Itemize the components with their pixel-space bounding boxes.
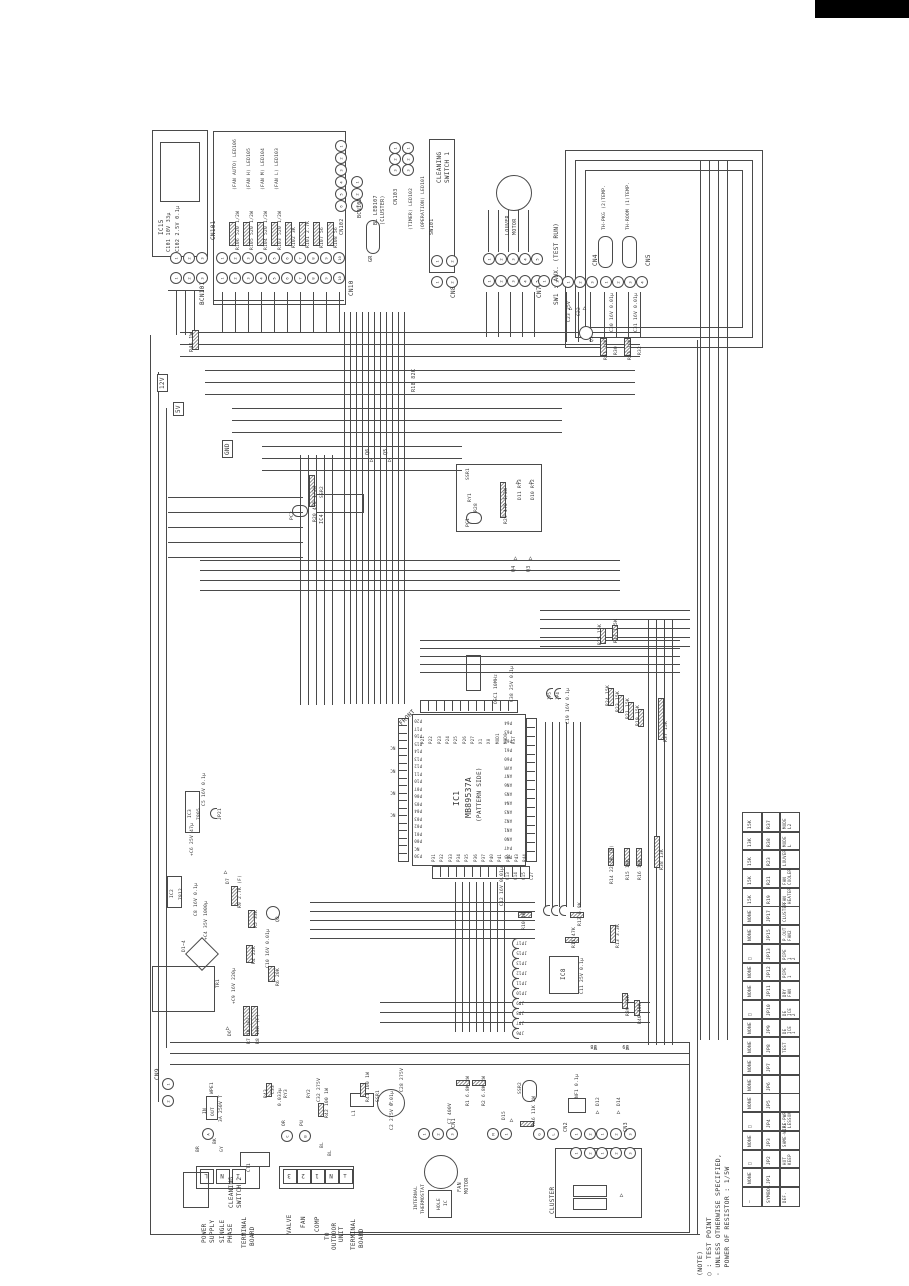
table-cell-text: DRY FAN bbox=[783, 989, 792, 997]
connector-pin: 3 bbox=[242, 272, 254, 284]
pin-label: JP13 bbox=[516, 960, 527, 965]
pin-number: C bbox=[284, 1135, 289, 1137]
diode-icon: ▷ bbox=[618, 1193, 625, 1197]
part-label: R42 100 1W bbox=[325, 1088, 330, 1118]
bus-wire bbox=[497, 882, 498, 1032]
bus-wire bbox=[476, 882, 477, 1032]
table-cell-text: NONE bbox=[748, 929, 753, 941]
pin-number: 1 bbox=[421, 1133, 426, 1135]
bus-wire bbox=[180, 356, 640, 357]
component-box bbox=[152, 966, 215, 1012]
connector-pin: 2 bbox=[612, 276, 624, 288]
part-label: R41 100 1W bbox=[366, 1072, 371, 1102]
part-label: TH-PKG (2)TEMP. bbox=[602, 185, 607, 230]
table-cell bbox=[742, 1149, 763, 1170]
connector-pin: 1 bbox=[600, 276, 612, 288]
resistor bbox=[268, 966, 275, 982]
pin-label: AN4 bbox=[504, 800, 512, 805]
table-cell-text: MODE L bbox=[783, 837, 792, 848]
pin-label: P21 bbox=[421, 736, 426, 744]
part-label: JP5 bbox=[548, 692, 553, 700]
part-label: R21 15K bbox=[626, 698, 631, 719]
bus-wire bbox=[573, 722, 574, 907]
connector-pin: 7 bbox=[294, 252, 306, 264]
pin-label: P32 bbox=[440, 854, 445, 862]
ic-strip-divider bbox=[448, 866, 449, 877]
pin-label: P44 bbox=[523, 854, 528, 862]
part-label: R24 15K bbox=[606, 685, 611, 706]
connector-pin: M bbox=[487, 1128, 499, 1140]
pin-label: P05 bbox=[414, 801, 422, 806]
connector-pin: 2 bbox=[574, 276, 586, 288]
part-label: IC8 bbox=[560, 968, 567, 980]
bus-wire bbox=[672, 620, 673, 1045]
table-cell bbox=[742, 999, 763, 1020]
component-box bbox=[240, 1152, 270, 1167]
pin-number: 1 bbox=[599, 1133, 604, 1135]
pin-number: M bbox=[490, 1133, 495, 1135]
connector-pin: 2 bbox=[610, 1128, 622, 1140]
pin-number: 3 bbox=[245, 277, 250, 279]
bus-wire bbox=[200, 580, 620, 581]
bus-wire bbox=[552, 722, 553, 907]
pin-label: P60 bbox=[504, 756, 512, 761]
pin-number: 2 bbox=[405, 158, 410, 160]
pin-label: AN1 bbox=[504, 827, 512, 832]
part-label: HOLE bbox=[437, 1198, 442, 1210]
ic-strip-divider bbox=[398, 845, 407, 846]
note-line: POWER OF RESISTOR : 1/5W bbox=[724, 1166, 732, 1276]
connector-pin: C bbox=[281, 1130, 293, 1142]
pin-number: 3 bbox=[510, 258, 515, 260]
pin-number: 3 bbox=[589, 281, 594, 283]
part-label: R29 470 1/2W bbox=[504, 488, 509, 524]
table-cell-text: SAME-WIRE bbox=[783, 1122, 788, 1146]
part-label: VALVE bbox=[286, 1214, 293, 1234]
ic-strip-divider bbox=[526, 833, 535, 834]
part-label: BK bbox=[213, 1138, 218, 1144]
part-label: CN10 bbox=[348, 280, 355, 296]
part-label: R1 6.8K 2W bbox=[466, 1076, 471, 1106]
connector-pin: 1 bbox=[418, 1128, 430, 1140]
part-label: C13 bbox=[506, 872, 511, 880]
part-label: R106 520 1/2W bbox=[236, 211, 241, 250]
part-label: ⊥ bbox=[236, 1172, 240, 1179]
pin-label: P26 bbox=[463, 736, 468, 744]
connector-pin: 3 bbox=[624, 276, 636, 288]
part-label: OUT bbox=[211, 1107, 216, 1116]
ic-strip-divider bbox=[480, 866, 481, 877]
part-label: 3A 250V T bbox=[219, 1095, 224, 1122]
part-label: C8 16V 0.1μ bbox=[194, 883, 199, 916]
ic-strip bbox=[526, 718, 537, 862]
pin-number: 7 bbox=[297, 257, 302, 259]
wire bbox=[689, 1043, 690, 1233]
ic-strip bbox=[420, 700, 518, 713]
bus-wire bbox=[483, 882, 484, 1032]
pin-label: JP11 bbox=[516, 980, 527, 985]
pin-number: 2 bbox=[449, 260, 454, 262]
pin-number: 6 bbox=[284, 277, 289, 279]
part-label: PHASE bbox=[227, 1223, 234, 1243]
connector-pin: 2 bbox=[229, 252, 241, 264]
connector-pin: 1 bbox=[216, 272, 228, 284]
pin-number: 3 bbox=[199, 257, 204, 259]
pin-number: G bbox=[536, 1133, 541, 1135]
pin-number: 2 bbox=[232, 257, 237, 259]
part-label: C15 bbox=[522, 872, 527, 880]
part-label: RY1 bbox=[468, 493, 473, 502]
pin-label: AVR bbox=[504, 765, 512, 770]
pin-label: P41 bbox=[498, 854, 503, 862]
connector-pin: 1 bbox=[596, 1147, 608, 1159]
connector-pin: 2 bbox=[162, 1095, 174, 1107]
connector-pin: 4 bbox=[519, 275, 531, 287]
bus-wire bbox=[168, 542, 303, 543]
redaction-box bbox=[815, 0, 909, 18]
part-label: L1 bbox=[352, 1110, 357, 1116]
component-box bbox=[622, 236, 637, 268]
part-label: R102 3K bbox=[292, 227, 297, 248]
part-label: C19 16V 0.1μ bbox=[566, 688, 571, 724]
note-line: · UNLESS OTHERWISE SPECIFIED, bbox=[715, 1154, 723, 1276]
bus-wire bbox=[420, 672, 680, 673]
pin-label: JP17 bbox=[516, 940, 527, 945]
table-cell-text: JP13 bbox=[767, 948, 772, 960]
table-cell-text: JP7 bbox=[767, 1063, 772, 1072]
table-cell-text: R21 bbox=[767, 876, 772, 885]
part-label: C102 2.5V 0.1μ bbox=[176, 206, 182, 252]
part-label: R25 15K bbox=[598, 624, 603, 645]
table-cell-text: DE ICE 2 bbox=[783, 1008, 797, 1016]
pin-number: 2 bbox=[165, 1100, 170, 1102]
pin-label: MOD0 bbox=[504, 733, 509, 744]
ic-strip-divider bbox=[398, 838, 407, 839]
connector-pin: 2 bbox=[446, 255, 458, 267]
pin-label: JP15 bbox=[516, 950, 527, 955]
bus-wire bbox=[232, 432, 562, 433]
part-label: R17 1.5K bbox=[614, 619, 619, 643]
part-label: SSR1 bbox=[466, 468, 471, 480]
connector-pin: 2 bbox=[183, 252, 195, 264]
connector-pin: 4 bbox=[335, 176, 347, 188]
bus-wire bbox=[392, 312, 393, 704]
table-cell-text: PIPE 1 2 bbox=[783, 949, 797, 960]
part-label: D1~4 bbox=[182, 940, 187, 952]
ic-strip-divider bbox=[468, 700, 469, 711]
part-label: (FAN AUTO) LED106 bbox=[233, 139, 238, 190]
table-cell-text: — bbox=[748, 1200, 753, 1203]
pin-label: AN6 bbox=[504, 782, 512, 787]
table-cell-text: R19 bbox=[767, 894, 772, 903]
pin-number: 2 bbox=[186, 257, 191, 259]
pin-number: 3 bbox=[627, 1133, 632, 1135]
part-label: C31 16V 0.01μ bbox=[634, 293, 639, 332]
part-label: R19 15K bbox=[636, 705, 641, 726]
bus-wire bbox=[168, 557, 303, 558]
part-label: R46 11K 2W bbox=[532, 1096, 537, 1126]
connector-pin: 7 bbox=[294, 272, 306, 284]
part-label: Q5 bbox=[384, 448, 390, 455]
table-cell-text: NONE bbox=[748, 1097, 753, 1109]
pin-label: P04 bbox=[414, 808, 422, 813]
pin-number: 3 bbox=[627, 1152, 632, 1154]
connector-pin: 1 bbox=[483, 275, 495, 287]
component-box bbox=[568, 1098, 586, 1113]
bus-wire bbox=[232, 408, 562, 409]
bus-wire bbox=[185, 290, 186, 335]
jumper-arc bbox=[210, 808, 217, 819]
table-cell bbox=[742, 943, 763, 964]
table-cell-text: 15K bbox=[748, 876, 753, 885]
ic-strip-divider bbox=[508, 700, 509, 711]
connector-pin: 5 bbox=[335, 188, 347, 200]
part-label: C5 16V 0.1μ bbox=[202, 773, 207, 806]
pin-label: P24 bbox=[446, 736, 451, 744]
table-cell-text: NONE bbox=[748, 1172, 753, 1184]
part-label: FAN bbox=[458, 1182, 464, 1192]
part-label: N bbox=[329, 1172, 333, 1179]
part-label: IC4 bbox=[320, 514, 326, 524]
part-label: Q1 bbox=[590, 336, 595, 342]
ic-strip-divider bbox=[526, 816, 535, 817]
diode-icon: ▷ bbox=[594, 1110, 601, 1114]
part-label: SW101 bbox=[430, 218, 436, 235]
connector-pin: 1 bbox=[170, 272, 182, 284]
bus-wire bbox=[420, 664, 680, 665]
connector-pin: 3 bbox=[446, 1128, 458, 1140]
pin-number: 5 bbox=[271, 277, 276, 279]
bus-wire bbox=[310, 920, 535, 921]
part-label: CN102 bbox=[340, 218, 346, 235]
bus-wire bbox=[469, 882, 470, 1032]
pin-number: 2 bbox=[587, 1133, 592, 1135]
part-label: C11 25V 0.1μ bbox=[580, 958, 585, 994]
ic-strip-divider bbox=[398, 763, 407, 764]
connector-pin: 3 bbox=[242, 252, 254, 264]
connector-pin: 1 bbox=[335, 140, 347, 152]
diode-icon: ▷ bbox=[224, 1026, 231, 1030]
pin-label: P30 bbox=[414, 853, 422, 858]
connector-pin: 1 bbox=[562, 276, 574, 288]
part-label: R105 520 1/2W bbox=[250, 211, 255, 250]
connector-pin: 9 bbox=[320, 252, 332, 264]
part-label: R12 6.8K bbox=[578, 902, 583, 926]
part-label: BCN101 bbox=[199, 282, 206, 305]
part-label: IC3 bbox=[188, 809, 193, 818]
bus-wire bbox=[310, 911, 535, 912]
part-label: IC2 bbox=[170, 889, 175, 898]
table-cell-text: JP4 bbox=[767, 1119, 772, 1128]
part-label: R31 10K bbox=[604, 339, 609, 360]
table-cell-text: JP5 bbox=[767, 1100, 772, 1109]
part-label: TERMINAL bbox=[350, 1219, 357, 1250]
pin-number: 1 bbox=[165, 1083, 170, 1085]
connector-pin: 4 bbox=[255, 272, 267, 284]
pin-label: P01 bbox=[414, 831, 422, 836]
ic-strip-divider bbox=[526, 798, 535, 799]
circle-part bbox=[424, 1155, 458, 1189]
resistor bbox=[313, 222, 320, 246]
table-cell-text: □ bbox=[748, 957, 753, 960]
resistor bbox=[327, 222, 334, 246]
part-label: INTERNAL bbox=[414, 1186, 419, 1210]
part-label: +C9 16V 220μ bbox=[232, 968, 237, 1004]
connector-pin: 3 bbox=[624, 1147, 636, 1159]
part-label: POWER bbox=[201, 1223, 208, 1243]
diode-icon: ▷ bbox=[592, 1046, 599, 1050]
table-cell-text: NONE bbox=[748, 966, 753, 978]
connector-pin: L bbox=[547, 1128, 559, 1140]
pin-number: 6 bbox=[284, 257, 289, 259]
ic-strip-divider bbox=[398, 793, 407, 794]
pin-label: P10 bbox=[414, 778, 422, 783]
part-label: (PATTERN SIDE) bbox=[476, 767, 483, 822]
table-cell bbox=[742, 1111, 763, 1132]
part-label: SSR1 bbox=[376, 1090, 381, 1102]
part-label: IC15 bbox=[158, 219, 165, 235]
part-label: GR bbox=[369, 255, 375, 262]
ic-strip-divider bbox=[526, 762, 535, 763]
bus-wire bbox=[462, 882, 463, 1032]
diode-icon: ▷ bbox=[512, 556, 519, 560]
pin-label: P40 bbox=[490, 854, 495, 862]
part-label: R39 10K bbox=[626, 995, 631, 1016]
part-label: R38 13K bbox=[660, 849, 665, 870]
jumper-arc bbox=[559, 905, 566, 916]
table-cell-text: □ bbox=[748, 1013, 753, 1016]
part-label: R9 2.7K (F) bbox=[238, 875, 243, 908]
bus-wire bbox=[540, 610, 690, 611]
bus-wire bbox=[168, 497, 303, 498]
pin-number: 1 bbox=[173, 277, 178, 279]
ic-strip-divider bbox=[526, 771, 535, 772]
part-label: SSR2 bbox=[518, 1082, 523, 1094]
table-cell-text: FAN COOLER bbox=[783, 869, 792, 885]
part-label: NC bbox=[390, 745, 395, 750]
connector-pin: 5 bbox=[531, 253, 543, 265]
part-label: BL bbox=[328, 1150, 333, 1156]
part-label: D12 bbox=[596, 1097, 601, 1106]
part-label: RY2 bbox=[307, 1089, 312, 1098]
table-cell-text: □ bbox=[748, 1125, 753, 1128]
pin-number: 2 bbox=[587, 1152, 592, 1154]
part-label: R107 56 bbox=[320, 227, 325, 248]
connector-pin: 2 bbox=[610, 1147, 622, 1159]
resistor bbox=[271, 222, 278, 246]
table-cell bbox=[779, 1167, 800, 1188]
connector-pin: 6 bbox=[335, 200, 347, 212]
component-box bbox=[573, 1185, 607, 1197]
part-label: R20 470 1/2W bbox=[313, 486, 318, 522]
pin-label: P34 bbox=[457, 854, 462, 862]
bus-wire bbox=[490, 882, 491, 1032]
connector-pin: 1 bbox=[170, 252, 182, 264]
connector-pin: 2 bbox=[432, 1128, 444, 1140]
table-cell-text: SYMBOL bbox=[767, 1185, 772, 1203]
table-cell-text: □ bbox=[748, 1162, 753, 1165]
bus-wire bbox=[488, 210, 489, 252]
pin-label: X1 bbox=[479, 739, 484, 744]
part-label: L bbox=[204, 1172, 208, 1179]
pin-number: 2 bbox=[435, 1133, 440, 1135]
part-label: ⊥ bbox=[343, 1172, 347, 1179]
connector-pin: 4 bbox=[519, 253, 531, 265]
bus-wire bbox=[200, 590, 620, 591]
bus-wire bbox=[170, 1064, 690, 1065]
ic-strip-divider bbox=[526, 825, 535, 826]
pin-number: 10 bbox=[336, 256, 341, 261]
connector-pin: 8 bbox=[307, 272, 319, 284]
part-label: D7 bbox=[226, 878, 231, 884]
part-label: BOARD bbox=[358, 1228, 365, 1248]
connector-pin: 1 bbox=[162, 1078, 174, 1090]
ic-strip-divider bbox=[526, 780, 535, 781]
pin-label: P31 bbox=[432, 854, 437, 862]
ic-strip-divider bbox=[460, 700, 461, 711]
pin-number: 2 bbox=[449, 281, 454, 283]
part-label: R43 bbox=[264, 1089, 269, 1098]
pin-number: 9 bbox=[323, 277, 328, 279]
part-label: CLEANING bbox=[228, 1177, 235, 1208]
pin-number: 4 bbox=[258, 257, 263, 259]
part-label: JP21 bbox=[218, 808, 223, 820]
part-label: R2 6.8K 2W bbox=[482, 1076, 487, 1106]
pin-label: P42 bbox=[507, 854, 512, 862]
part-label: R15 10K bbox=[626, 859, 631, 880]
part-label: C38 25V 0.1μ bbox=[510, 666, 515, 702]
wire bbox=[697, 340, 698, 1234]
pin-number: B bbox=[302, 1135, 307, 1137]
part-label: CN9 bbox=[154, 1068, 161, 1080]
part-label: SSR2 bbox=[320, 486, 325, 498]
part-label: LOUVER bbox=[506, 215, 512, 235]
part-label: CLEANING bbox=[436, 152, 443, 183]
pin-number: 1 bbox=[434, 281, 439, 283]
pin-number: 2 bbox=[577, 281, 582, 283]
part-label: 5V bbox=[173, 402, 184, 416]
connector-pin: 1 bbox=[500, 1128, 512, 1140]
table-cell-text: 15K bbox=[748, 894, 753, 903]
part-label: SW1 : AUX. (TEST RUN) bbox=[553, 223, 560, 305]
resistor bbox=[318, 1103, 324, 1117]
pin-number: 1 bbox=[541, 280, 546, 282]
part-label: BL LED107 bbox=[374, 195, 380, 225]
part-label: (FAN M) LED104 bbox=[261, 148, 266, 190]
bus-wire bbox=[656, 620, 657, 1045]
ic-strip-divider bbox=[398, 853, 407, 854]
pin-label: P00 bbox=[414, 838, 422, 843]
connector-pin: 2 bbox=[584, 1147, 596, 1159]
part-label: R101 2.7K bbox=[306, 221, 311, 248]
table-cell-text: 13K bbox=[748, 838, 753, 847]
part-label: R40 10K bbox=[638, 1003, 643, 1024]
part-label: R32 bbox=[638, 346, 643, 355]
diode-icon: ▷ bbox=[581, 306, 588, 310]
part-label: IC bbox=[444, 1200, 449, 1206]
part-label: CN1 bbox=[452, 1118, 458, 1128]
pin-number: 3 bbox=[199, 277, 204, 279]
ic-strip-divider bbox=[398, 770, 407, 771]
table-cell-text: NONE bbox=[748, 985, 753, 997]
pin-number: 2 bbox=[354, 193, 359, 195]
component-box bbox=[366, 220, 380, 254]
pin-label: AN5 bbox=[504, 791, 512, 796]
table-cell-text: JP2 bbox=[767, 1156, 772, 1165]
ic-strip-divider bbox=[492, 700, 493, 711]
schematic-page: { "colors": {"line": "#4a4a4a", "text": … bbox=[0, 0, 909, 1286]
bus-wire bbox=[404, 312, 405, 704]
